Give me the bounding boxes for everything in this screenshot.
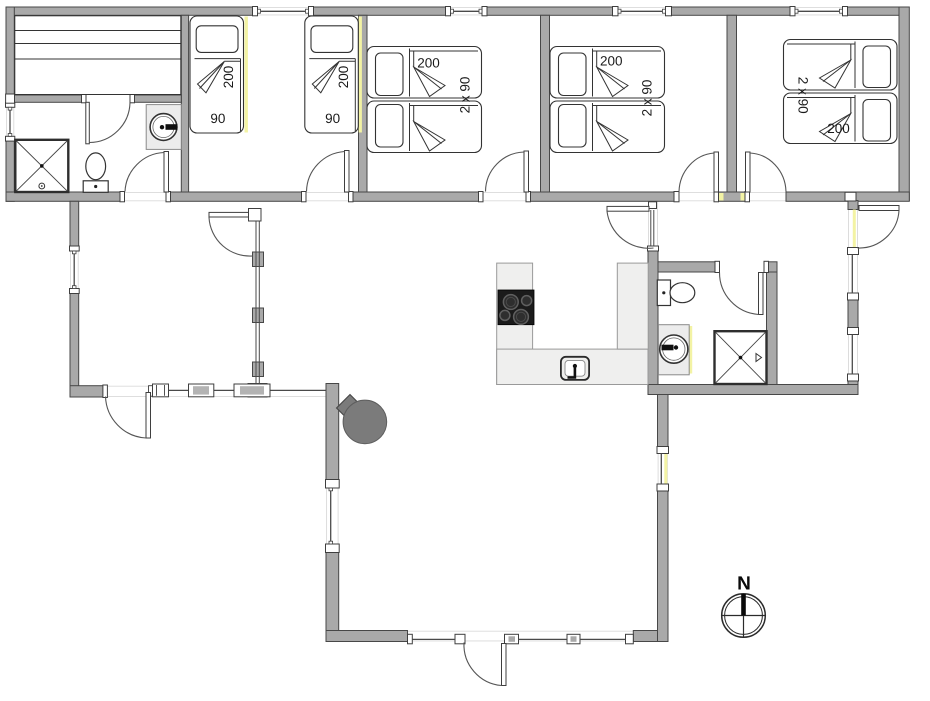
svg-text:200: 200 <box>827 121 850 136</box>
svg-text:N: N <box>737 574 751 595</box>
svg-text:200: 200 <box>336 66 351 89</box>
svg-text:90: 90 <box>210 111 225 126</box>
svg-text:200: 200 <box>600 54 623 69</box>
svg-text:90: 90 <box>325 111 340 126</box>
svg-text:2 x 90: 2 x 90 <box>796 77 811 114</box>
svg-text:200: 200 <box>417 56 440 71</box>
svg-text:2 x 90: 2 x 90 <box>640 80 655 117</box>
svg-text:200: 200 <box>221 66 236 89</box>
svg-text:2 x 90: 2 x 90 <box>458 77 473 114</box>
